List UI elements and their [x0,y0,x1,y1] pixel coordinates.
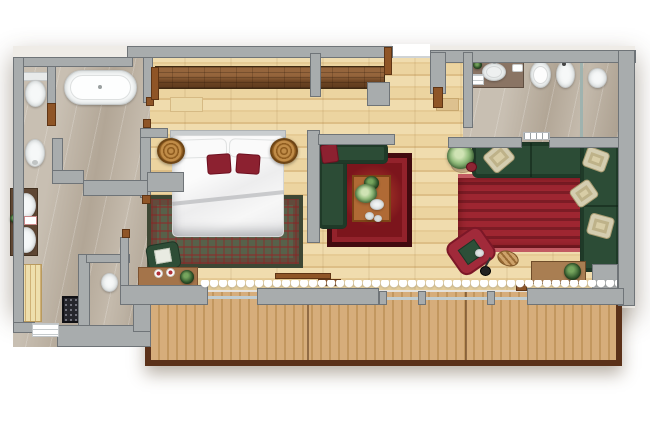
room-bedroom [150,58,307,290]
room-living [437,145,618,305]
room-vestibule [13,182,150,347]
floor-plan [0,0,650,432]
room-bathroom-left [13,57,150,182]
room-bathroom-right [463,50,635,148]
room-balcony [145,290,622,373]
room-corridor [320,46,463,146]
